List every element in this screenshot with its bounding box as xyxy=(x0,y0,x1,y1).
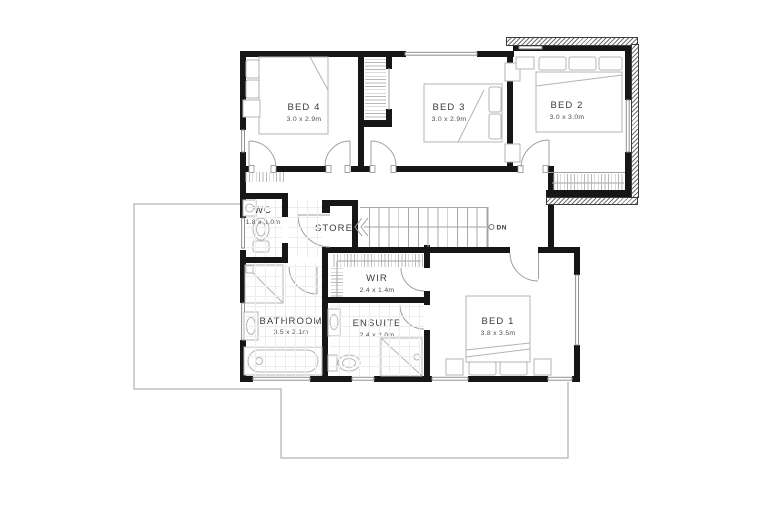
stairs-dn-label: DN xyxy=(497,225,507,232)
wir-label: WIR xyxy=(366,273,388,284)
hall-nook-door xyxy=(325,141,350,166)
bed3-dims: 3.0 x 2.9m xyxy=(432,116,467,123)
wir-hanging-left xyxy=(331,267,343,299)
bed1-label: BED 1 xyxy=(482,316,515,327)
ensuite-floor-tiles xyxy=(330,303,424,376)
hatched-wall-right xyxy=(631,44,639,198)
lobby-floor-tiles xyxy=(288,199,322,257)
linen-shelves xyxy=(243,172,285,182)
stair-dn-marker xyxy=(489,225,494,230)
hatched-wall-top xyxy=(506,37,638,46)
hatched-wall-robe-bottom xyxy=(546,197,638,205)
bed2-door xyxy=(521,140,549,167)
stair-treads xyxy=(360,207,488,247)
bed2-dims: 3.0 x 3.0m xyxy=(550,114,585,121)
wir-door xyxy=(401,268,424,291)
floor-plan: BED 4 BED 3 BED 2 WC STORE WIR BATHROOM … xyxy=(0,0,768,512)
bed3-door xyxy=(371,141,396,166)
bed4-door xyxy=(249,141,276,167)
bed1-door xyxy=(510,253,539,281)
bed1-dims: 3.8 x 3.5m xyxy=(481,330,516,337)
bed4-dims: 3.0 x 2.9m xyxy=(287,116,322,123)
wir-dims: 2.4 x 1.4m xyxy=(360,287,395,294)
bed2-robe-hanging xyxy=(551,174,625,190)
bed4-label: BED 4 xyxy=(288,102,321,113)
bed3-robe-shelves xyxy=(365,59,386,120)
bed2-label: BED 2 xyxy=(551,100,584,111)
bed3-label: BED 3 xyxy=(433,102,466,113)
wir-hanging-top xyxy=(331,254,423,267)
bathroom-floor-tiles xyxy=(246,263,322,376)
wc-floor-tiles xyxy=(246,199,282,257)
